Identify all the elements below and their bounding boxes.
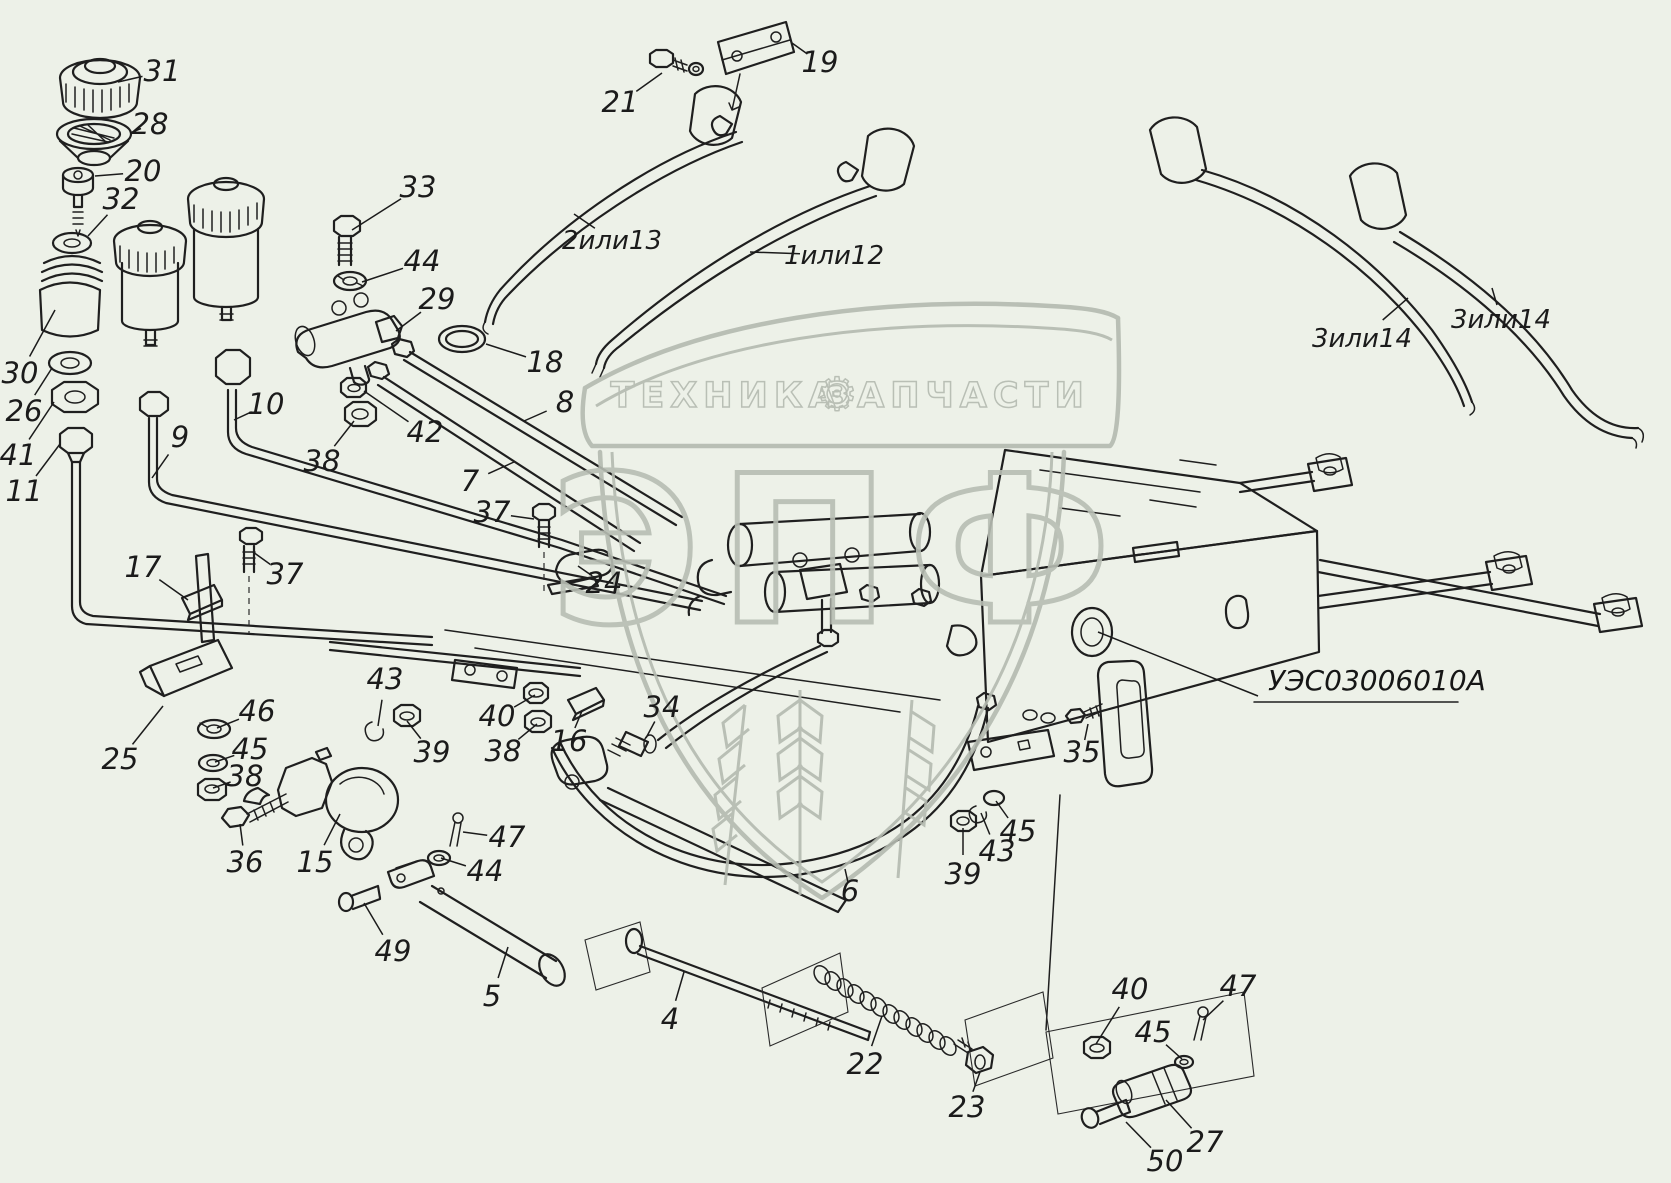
- exploded-parts-diagram: ТЕХНИКА ⚙ ЗАПЧАСТИ ЭПФ УЭС03006010А 3128…: [0, 0, 1671, 1179]
- callout-number: 35: [1064, 735, 1101, 769]
- part-number-label: УЭС03006010А: [1268, 664, 1486, 697]
- callout-number: 45: [1000, 814, 1037, 848]
- callout-number: 17: [125, 550, 162, 584]
- watermark-banner-left: ТЕХНИКА: [610, 376, 841, 416]
- callout-number: 40: [1112, 972, 1149, 1006]
- callout-number: 32: [103, 182, 140, 216]
- callout-number: 38: [227, 759, 264, 793]
- callout-number: 38: [485, 734, 522, 768]
- callout-number: 49: [375, 934, 412, 968]
- callout-number: 36: [227, 845, 264, 879]
- callout-number: 29: [419, 282, 456, 316]
- callout-number: 34: [644, 690, 681, 724]
- callout-number: 22: [847, 1047, 884, 1081]
- callout-number: 2или13: [562, 226, 662, 256]
- callout-number: 38: [304, 444, 341, 478]
- callout-number: 25: [102, 742, 139, 776]
- callout-number: 24: [586, 566, 623, 600]
- callout-6-46: 6: [841, 869, 859, 908]
- callout-number: 10: [248, 387, 285, 421]
- callout-number: 42: [407, 415, 444, 449]
- callout-number: 8: [556, 385, 574, 419]
- callout-number: 28: [132, 107, 169, 141]
- callout-number: 3или14: [1312, 324, 1412, 354]
- callout-number: 37: [474, 495, 511, 529]
- callout-number: 41: [0, 438, 36, 472]
- callout-number: 50: [1147, 1144, 1184, 1178]
- callout-number: 43: [367, 662, 404, 696]
- callout-number: 16: [551, 724, 588, 758]
- callout-number: 7: [461, 464, 480, 498]
- callout-number: 47: [489, 820, 526, 854]
- callout-28-1: 28: [130, 107, 168, 141]
- callout-number: 31: [144, 54, 181, 88]
- callout-number: 33: [400, 170, 437, 204]
- callout-number: 27: [1187, 1125, 1224, 1159]
- callout-number: 6: [841, 874, 859, 908]
- callout-number: 39: [414, 735, 451, 769]
- callout-number: 44: [467, 854, 504, 888]
- callout-number: 45: [1135, 1015, 1172, 1049]
- callout-number: 9: [171, 420, 189, 454]
- callout-number: 46: [239, 694, 276, 728]
- callout-number: 11: [6, 474, 43, 508]
- callout-number: 5: [483, 979, 501, 1013]
- callout-24-19: 24: [578, 566, 622, 600]
- watermark-letters: ЭПФ: [550, 433, 1129, 671]
- callout-number: 4: [661, 1002, 679, 1036]
- callout-number: 30: [2, 356, 39, 390]
- callout-number: 15: [297, 845, 334, 879]
- callout-number: 21: [602, 85, 639, 119]
- parts-catalog-page: ТЕХНИКА ⚙ ЗАПЧАСТИ ЭПФ УЭС03006010А 3128…: [0, 0, 1671, 1179]
- callout-number: 23: [949, 1090, 986, 1124]
- callout-number: 18: [527, 345, 564, 379]
- callout-number: 1или12: [784, 241, 884, 271]
- callout-number: 44: [404, 244, 441, 278]
- callout-number: 47: [1220, 969, 1257, 1003]
- callout-number: 39: [945, 857, 982, 891]
- callout-number: 37: [267, 557, 304, 591]
- callout-number: 40: [479, 699, 516, 733]
- callout-number: 3или14: [1451, 305, 1551, 335]
- watermark-banner-right: ЗАПЧАСТИ: [826, 376, 1089, 416]
- callout-number: 19: [802, 45, 839, 79]
- callout-number: 26: [6, 394, 43, 428]
